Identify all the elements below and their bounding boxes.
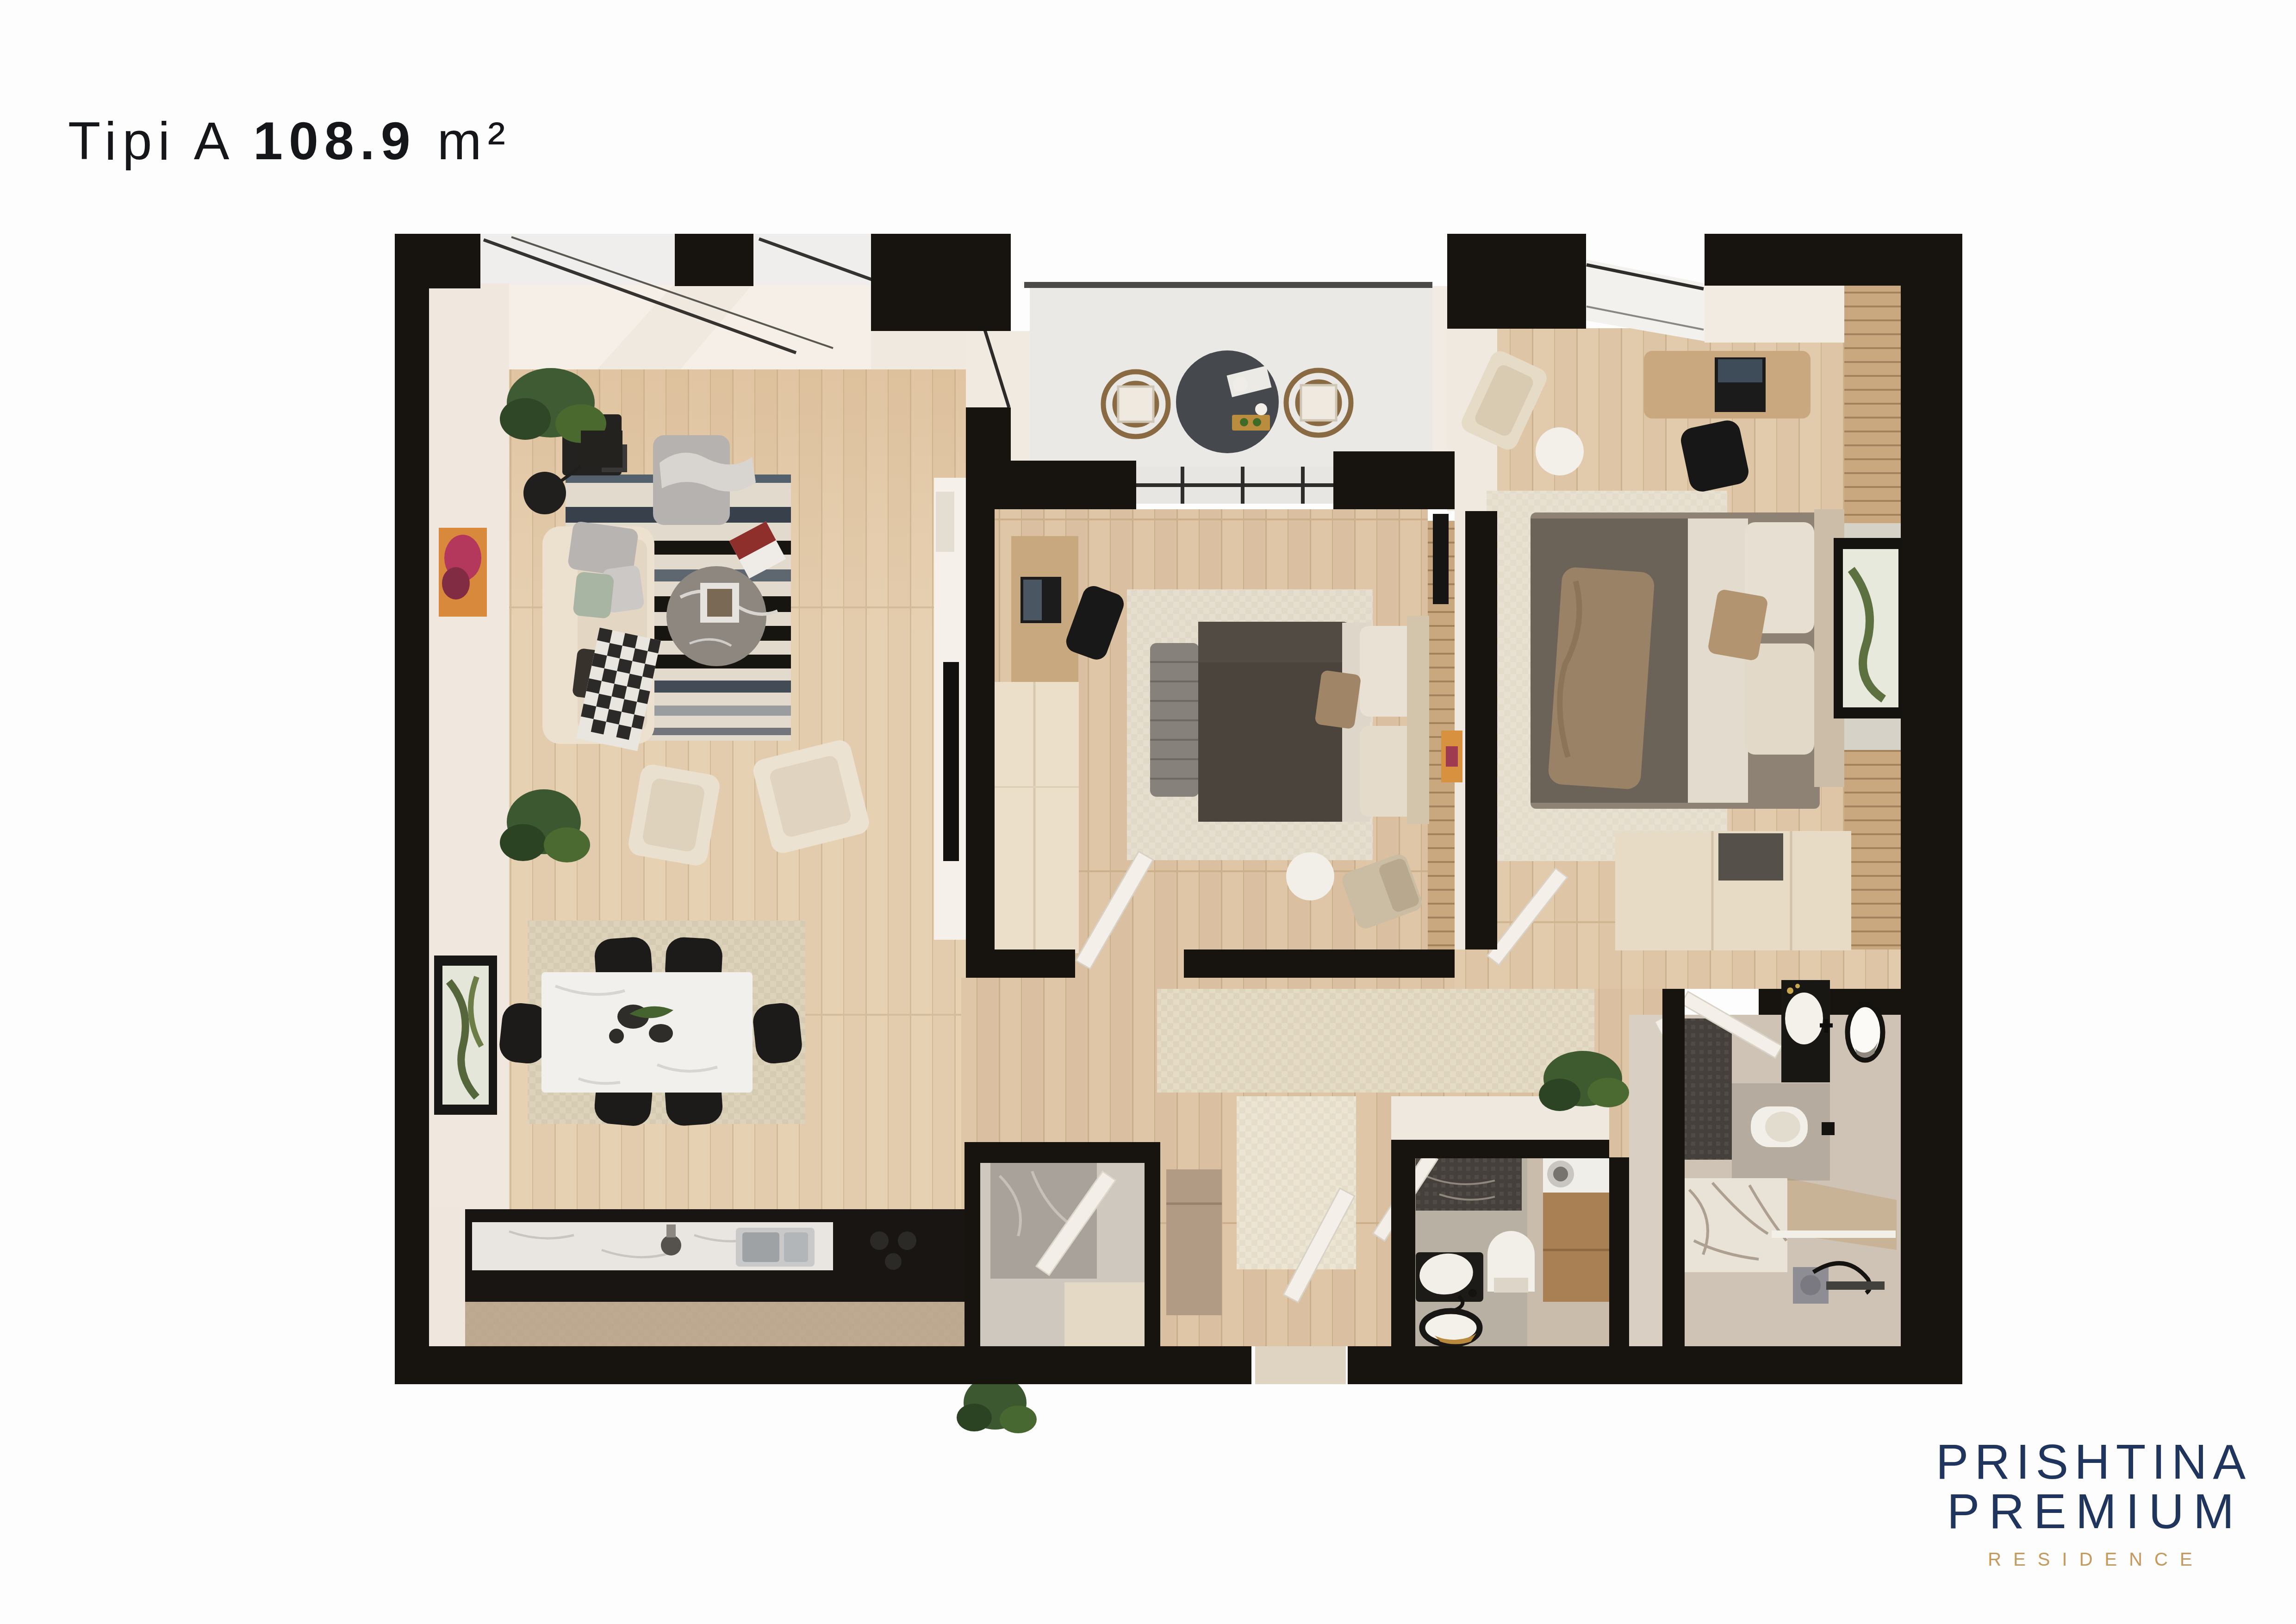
svg-text:PREMIUM: PREMIUM <box>1947 1484 2244 1538</box>
svg-text:RESIDENCE: RESIDENCE <box>1988 1549 2204 1569</box>
svg-text:Tipi A 108.9 m²: Tipi A 108.9 m² <box>68 111 511 170</box>
svg-text:PRISHTINA: PRISHTINA <box>1936 1434 2252 1489</box>
